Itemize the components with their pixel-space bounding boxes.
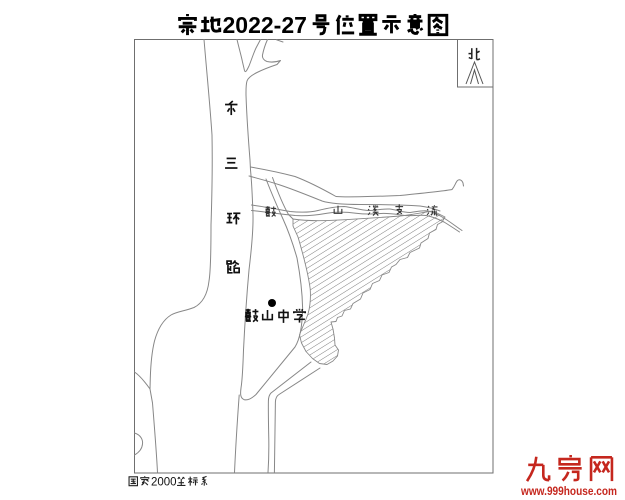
svg-text:2000: 2000: [151, 477, 177, 489]
svg-text:2022-27: 2022-27: [223, 12, 307, 38]
svg-text:www.999house.com: www.999house.com: [520, 486, 617, 498]
